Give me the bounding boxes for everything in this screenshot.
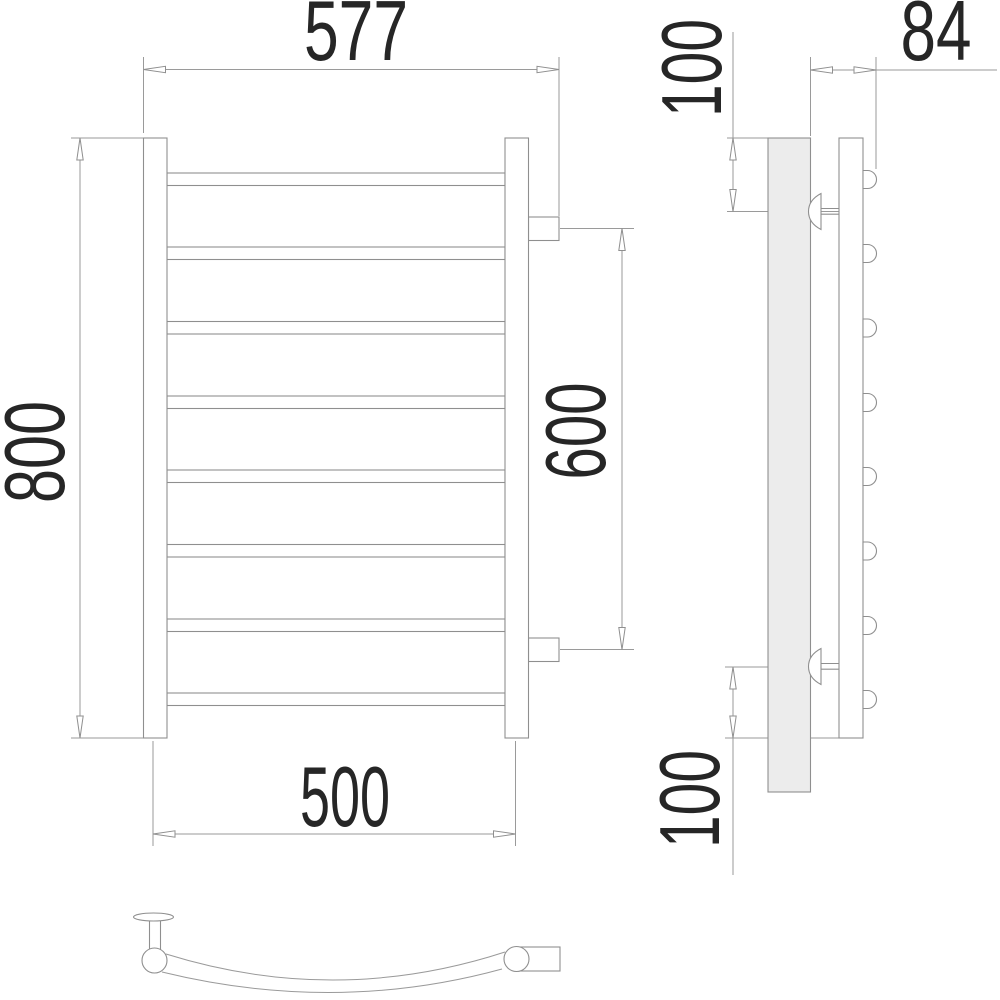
stile-right bbox=[505, 138, 529, 738]
side-view bbox=[725, 57, 877, 792]
stile-left bbox=[144, 138, 168, 738]
top-view-stile-left-section bbox=[142, 948, 167, 973]
rung-5 bbox=[167, 470, 505, 483]
dim-label-top-bracket-offset: 100 bbox=[645, 19, 740, 117]
top-view-stile-right-section bbox=[504, 947, 529, 972]
rung-end-8 bbox=[863, 691, 877, 709]
arrowhead-84-left bbox=[811, 67, 833, 73]
wall-plate bbox=[768, 138, 811, 792]
dim-wall-depth: 84 bbox=[811, 0, 998, 79]
rung-end-3 bbox=[863, 319, 877, 337]
connection-stub-bottom bbox=[529, 638, 560, 662]
rung-6 bbox=[167, 545, 505, 558]
dim-label-bar-width: 500 bbox=[300, 750, 390, 845]
rung-end-6 bbox=[863, 542, 877, 560]
arrowhead-800-top bbox=[77, 138, 83, 160]
top-view-bracket-flange bbox=[134, 913, 174, 921]
dim-label-connection-spacing: 600 bbox=[529, 383, 624, 480]
drawing-canvas: 577 800 600 500 84 bbox=[0, 0, 1000, 1000]
arrowhead-84-right bbox=[854, 67, 876, 73]
stile-side-profile bbox=[839, 138, 863, 738]
arrowhead-577-left bbox=[144, 66, 166, 72]
dim-overall-width: 577 bbox=[144, 0, 560, 79]
bracket-bottom bbox=[809, 649, 840, 685]
curved-bar-front-edge bbox=[166, 952, 505, 980]
rung-end-7 bbox=[863, 617, 877, 635]
dim-top-bracket-offset: 100 bbox=[645, 19, 740, 212]
arrowhead-600-top bbox=[619, 229, 625, 251]
rung-8 bbox=[167, 693, 505, 706]
dim-overall-height: 800 bbox=[0, 138, 83, 738]
rung-1 bbox=[167, 173, 505, 186]
curved-bar-back-edge bbox=[162, 969, 502, 993]
dim-bar-width: 500 bbox=[153, 750, 516, 845]
arrowhead-577-right bbox=[537, 66, 559, 72]
rung-end-5 bbox=[863, 468, 877, 486]
arrowhead-500-left bbox=[153, 831, 175, 837]
rung-3 bbox=[167, 322, 505, 335]
arrowhead-600-bottom bbox=[619, 628, 625, 650]
rung-4 bbox=[167, 396, 505, 409]
rung-7 bbox=[167, 619, 505, 632]
dim-label-bottom-bracket-offset: 100 bbox=[643, 750, 738, 848]
towel-rail-technical-drawing: 577 800 600 500 84 bbox=[0, 0, 1000, 1000]
dim-connection-spacing: 600 bbox=[529, 229, 625, 650]
dim-label-overall-width: 577 bbox=[304, 0, 408, 79]
rung-end-1 bbox=[863, 171, 877, 189]
rung-end-4 bbox=[863, 394, 877, 412]
rung-end-2 bbox=[863, 245, 877, 263]
arrowhead-100bot-up bbox=[730, 667, 736, 689]
rung-2 bbox=[167, 247, 505, 260]
arrowhead-100top-down bbox=[730, 190, 736, 212]
top-view bbox=[134, 913, 561, 993]
arrowhead-500-right bbox=[494, 831, 516, 837]
arrowhead-800-bottom bbox=[77, 716, 83, 738]
dim-bottom-bracket-offset: 100 bbox=[643, 667, 738, 875]
arrowhead-100top-up bbox=[730, 138, 736, 160]
dim-label-wall-depth: 84 bbox=[901, 0, 972, 79]
arrowhead-100bot-down bbox=[730, 716, 736, 738]
dim-label-overall-height: 800 bbox=[0, 401, 83, 503]
connection-stub-top bbox=[529, 217, 560, 241]
